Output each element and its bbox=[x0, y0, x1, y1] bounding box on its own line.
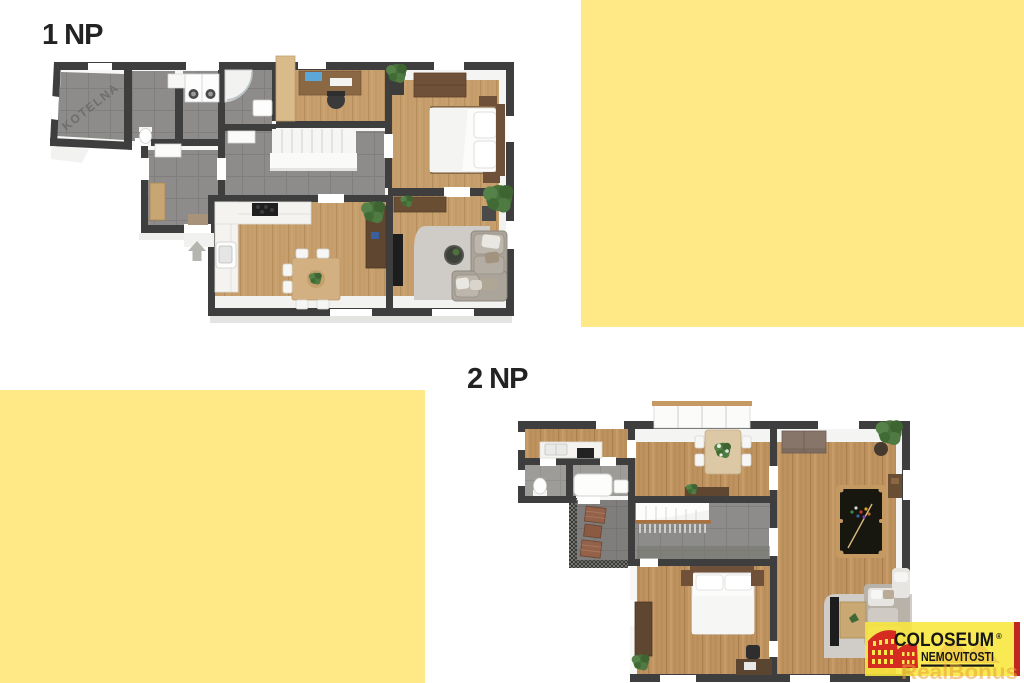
svg-text:1 NP: 1 NP bbox=[42, 19, 103, 51]
svg-text:COLOSEUM: COLOSEUM bbox=[894, 629, 994, 651]
svg-text:®: ® bbox=[996, 632, 1002, 641]
svg-text:2 NP: 2 NP bbox=[467, 363, 528, 395]
svg-text:RealBonus: RealBonus bbox=[901, 661, 1018, 683]
